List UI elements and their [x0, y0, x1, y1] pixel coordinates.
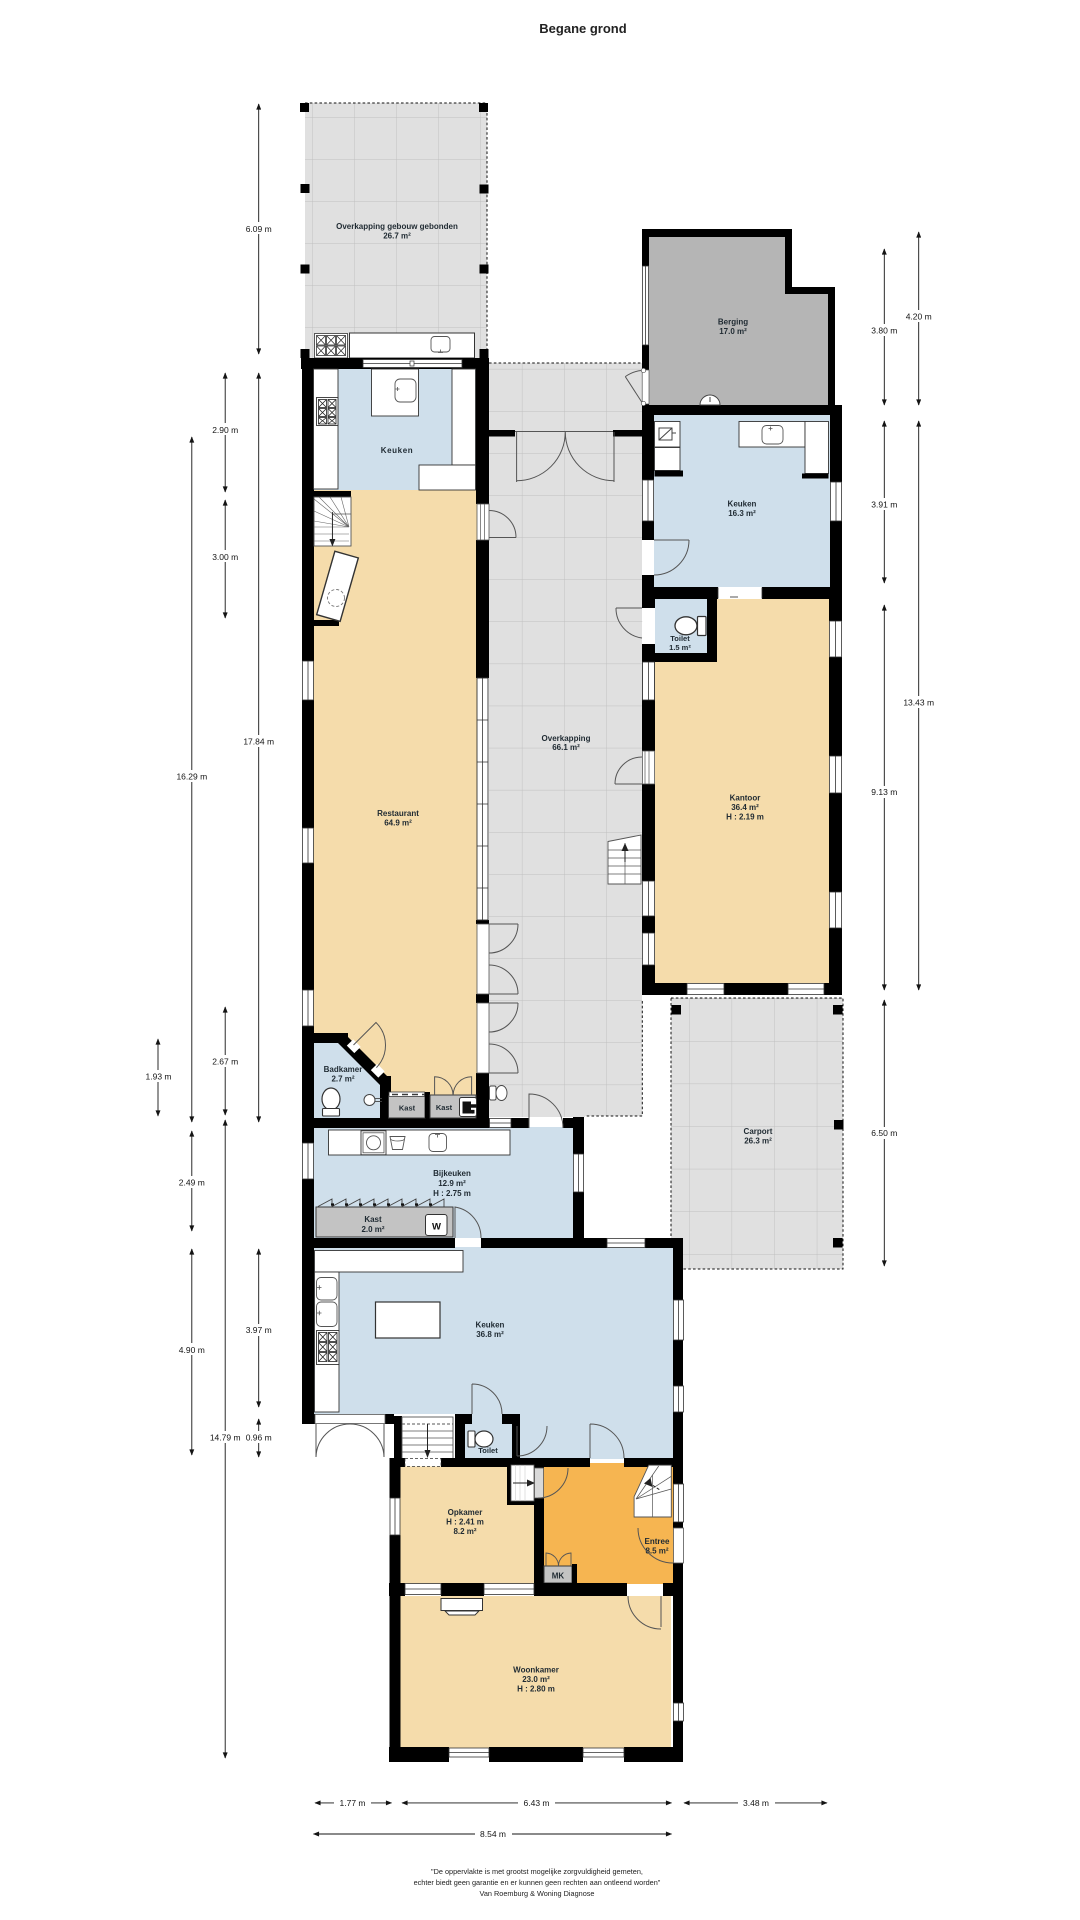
svg-text:12.9 m²: 12.9 m² — [438, 1179, 466, 1188]
svg-text:Badkamer: Badkamer — [324, 1065, 363, 1074]
svg-text:H : 2.41 m: H : 2.41 m — [446, 1518, 484, 1527]
svg-text:Kast: Kast — [399, 1104, 416, 1113]
svg-text:Keuken: Keuken — [476, 1321, 505, 1330]
svg-text:9.13 m: 9.13 m — [871, 787, 897, 797]
svg-text:26.7 m²: 26.7 m² — [383, 232, 411, 241]
svg-text:MK: MK — [552, 1572, 565, 1581]
svg-text:13.43 m: 13.43 m — [903, 698, 934, 708]
svg-text:1.5 m²: 1.5 m² — [669, 643, 691, 652]
svg-text:6.09 m: 6.09 m — [246, 224, 272, 234]
svg-text:Kast: Kast — [364, 1215, 382, 1224]
svg-text:16.3 m²: 16.3 m² — [728, 509, 756, 518]
svg-text:Keuken: Keuken — [728, 500, 757, 509]
svg-text:23.0 m²: 23.0 m² — [522, 1675, 550, 1684]
svg-text:4.20 m: 4.20 m — [906, 312, 932, 322]
svg-text:Opkamer: Opkamer — [448, 1508, 483, 1517]
svg-text:1.77 m: 1.77 m — [340, 1798, 366, 1808]
svg-text:26.3 m²: 26.3 m² — [744, 1137, 772, 1146]
svg-text:echter biedt geen garantie en: echter biedt geen garantie en er kunnen … — [414, 1878, 661, 1887]
svg-text:2.67 m: 2.67 m — [212, 1057, 238, 1067]
svg-text:36.8 m²: 36.8 m² — [476, 1330, 504, 1339]
svg-text:Toilet: Toilet — [670, 634, 690, 643]
svg-text:Toilet: Toilet — [478, 1446, 498, 1455]
svg-text:Overkapping gebouw gebonden: Overkapping gebouw gebonden — [336, 222, 458, 231]
svg-text:8.2 m²: 8.2 m² — [453, 1527, 476, 1536]
svg-text:Kantoor: Kantoor — [730, 794, 761, 803]
svg-text:H : 2.19 m: H : 2.19 m — [726, 813, 764, 822]
svg-text:8.5 m²: 8.5 m² — [645, 1547, 668, 1556]
svg-text:Bijkeuken: Bijkeuken — [433, 1169, 471, 1178]
svg-text:8.54 m: 8.54 m — [480, 1829, 506, 1839]
svg-text:3.80 m: 3.80 m — [871, 326, 897, 336]
svg-text:Berging: Berging — [718, 318, 748, 327]
svg-text:14.79 m: 14.79 m — [210, 1432, 241, 1442]
svg-text:2.90 m: 2.90 m — [212, 425, 238, 435]
svg-text:W: W — [432, 1222, 441, 1233]
svg-text:Van Roemburg & Woning Diagnose: Van Roemburg & Woning Diagnose — [480, 1889, 595, 1898]
svg-text:66.1 m²: 66.1 m² — [552, 743, 580, 752]
svg-text:6.43 m: 6.43 m — [524, 1798, 550, 1808]
svg-text:Carport: Carport — [744, 1127, 773, 1136]
svg-text:Kast: Kast — [436, 1103, 453, 1112]
svg-text:6.50 m: 6.50 m — [871, 1128, 897, 1138]
svg-text:Keuken: Keuken — [381, 446, 414, 455]
svg-text:Overkapping: Overkapping — [542, 734, 591, 743]
svg-text:Woonkamer: Woonkamer — [513, 1666, 559, 1675]
svg-text:16.29 m: 16.29 m — [176, 772, 207, 782]
svg-text:3.48 m: 3.48 m — [743, 1798, 769, 1808]
svg-text:36.4 m²: 36.4 m² — [731, 803, 759, 812]
svg-text:64.9 m²: 64.9 m² — [384, 819, 412, 828]
svg-text:3.91 m: 3.91 m — [871, 500, 897, 510]
svg-text:17.84 m: 17.84 m — [243, 736, 274, 746]
svg-text:17.0 m²: 17.0 m² — [719, 327, 747, 336]
svg-text:2.49 m: 2.49 m — [179, 1178, 205, 1188]
svg-text:H : 2.80 m: H : 2.80 m — [517, 1685, 555, 1694]
svg-text:3.97 m: 3.97 m — [246, 1325, 272, 1335]
svg-text:4.90 m: 4.90 m — [179, 1345, 205, 1355]
svg-text:Begane grond: Begane grond — [539, 21, 626, 36]
svg-text:2.0 m²: 2.0 m² — [361, 1225, 384, 1234]
svg-text:1.93 m: 1.93 m — [146, 1071, 172, 1081]
svg-text:3.00 m: 3.00 m — [212, 552, 238, 562]
svg-text:H : 2.75 m: H : 2.75 m — [433, 1189, 471, 1198]
svg-text:Entree: Entree — [645, 1537, 670, 1546]
svg-text:0.96 m: 0.96 m — [246, 1432, 272, 1442]
svg-text:"De oppervlakte is met grootst: "De oppervlakte is met grootst mogelijke… — [431, 1867, 643, 1876]
svg-text:2.7 m²: 2.7 m² — [331, 1075, 354, 1084]
svg-text:Restaurant: Restaurant — [377, 809, 419, 818]
